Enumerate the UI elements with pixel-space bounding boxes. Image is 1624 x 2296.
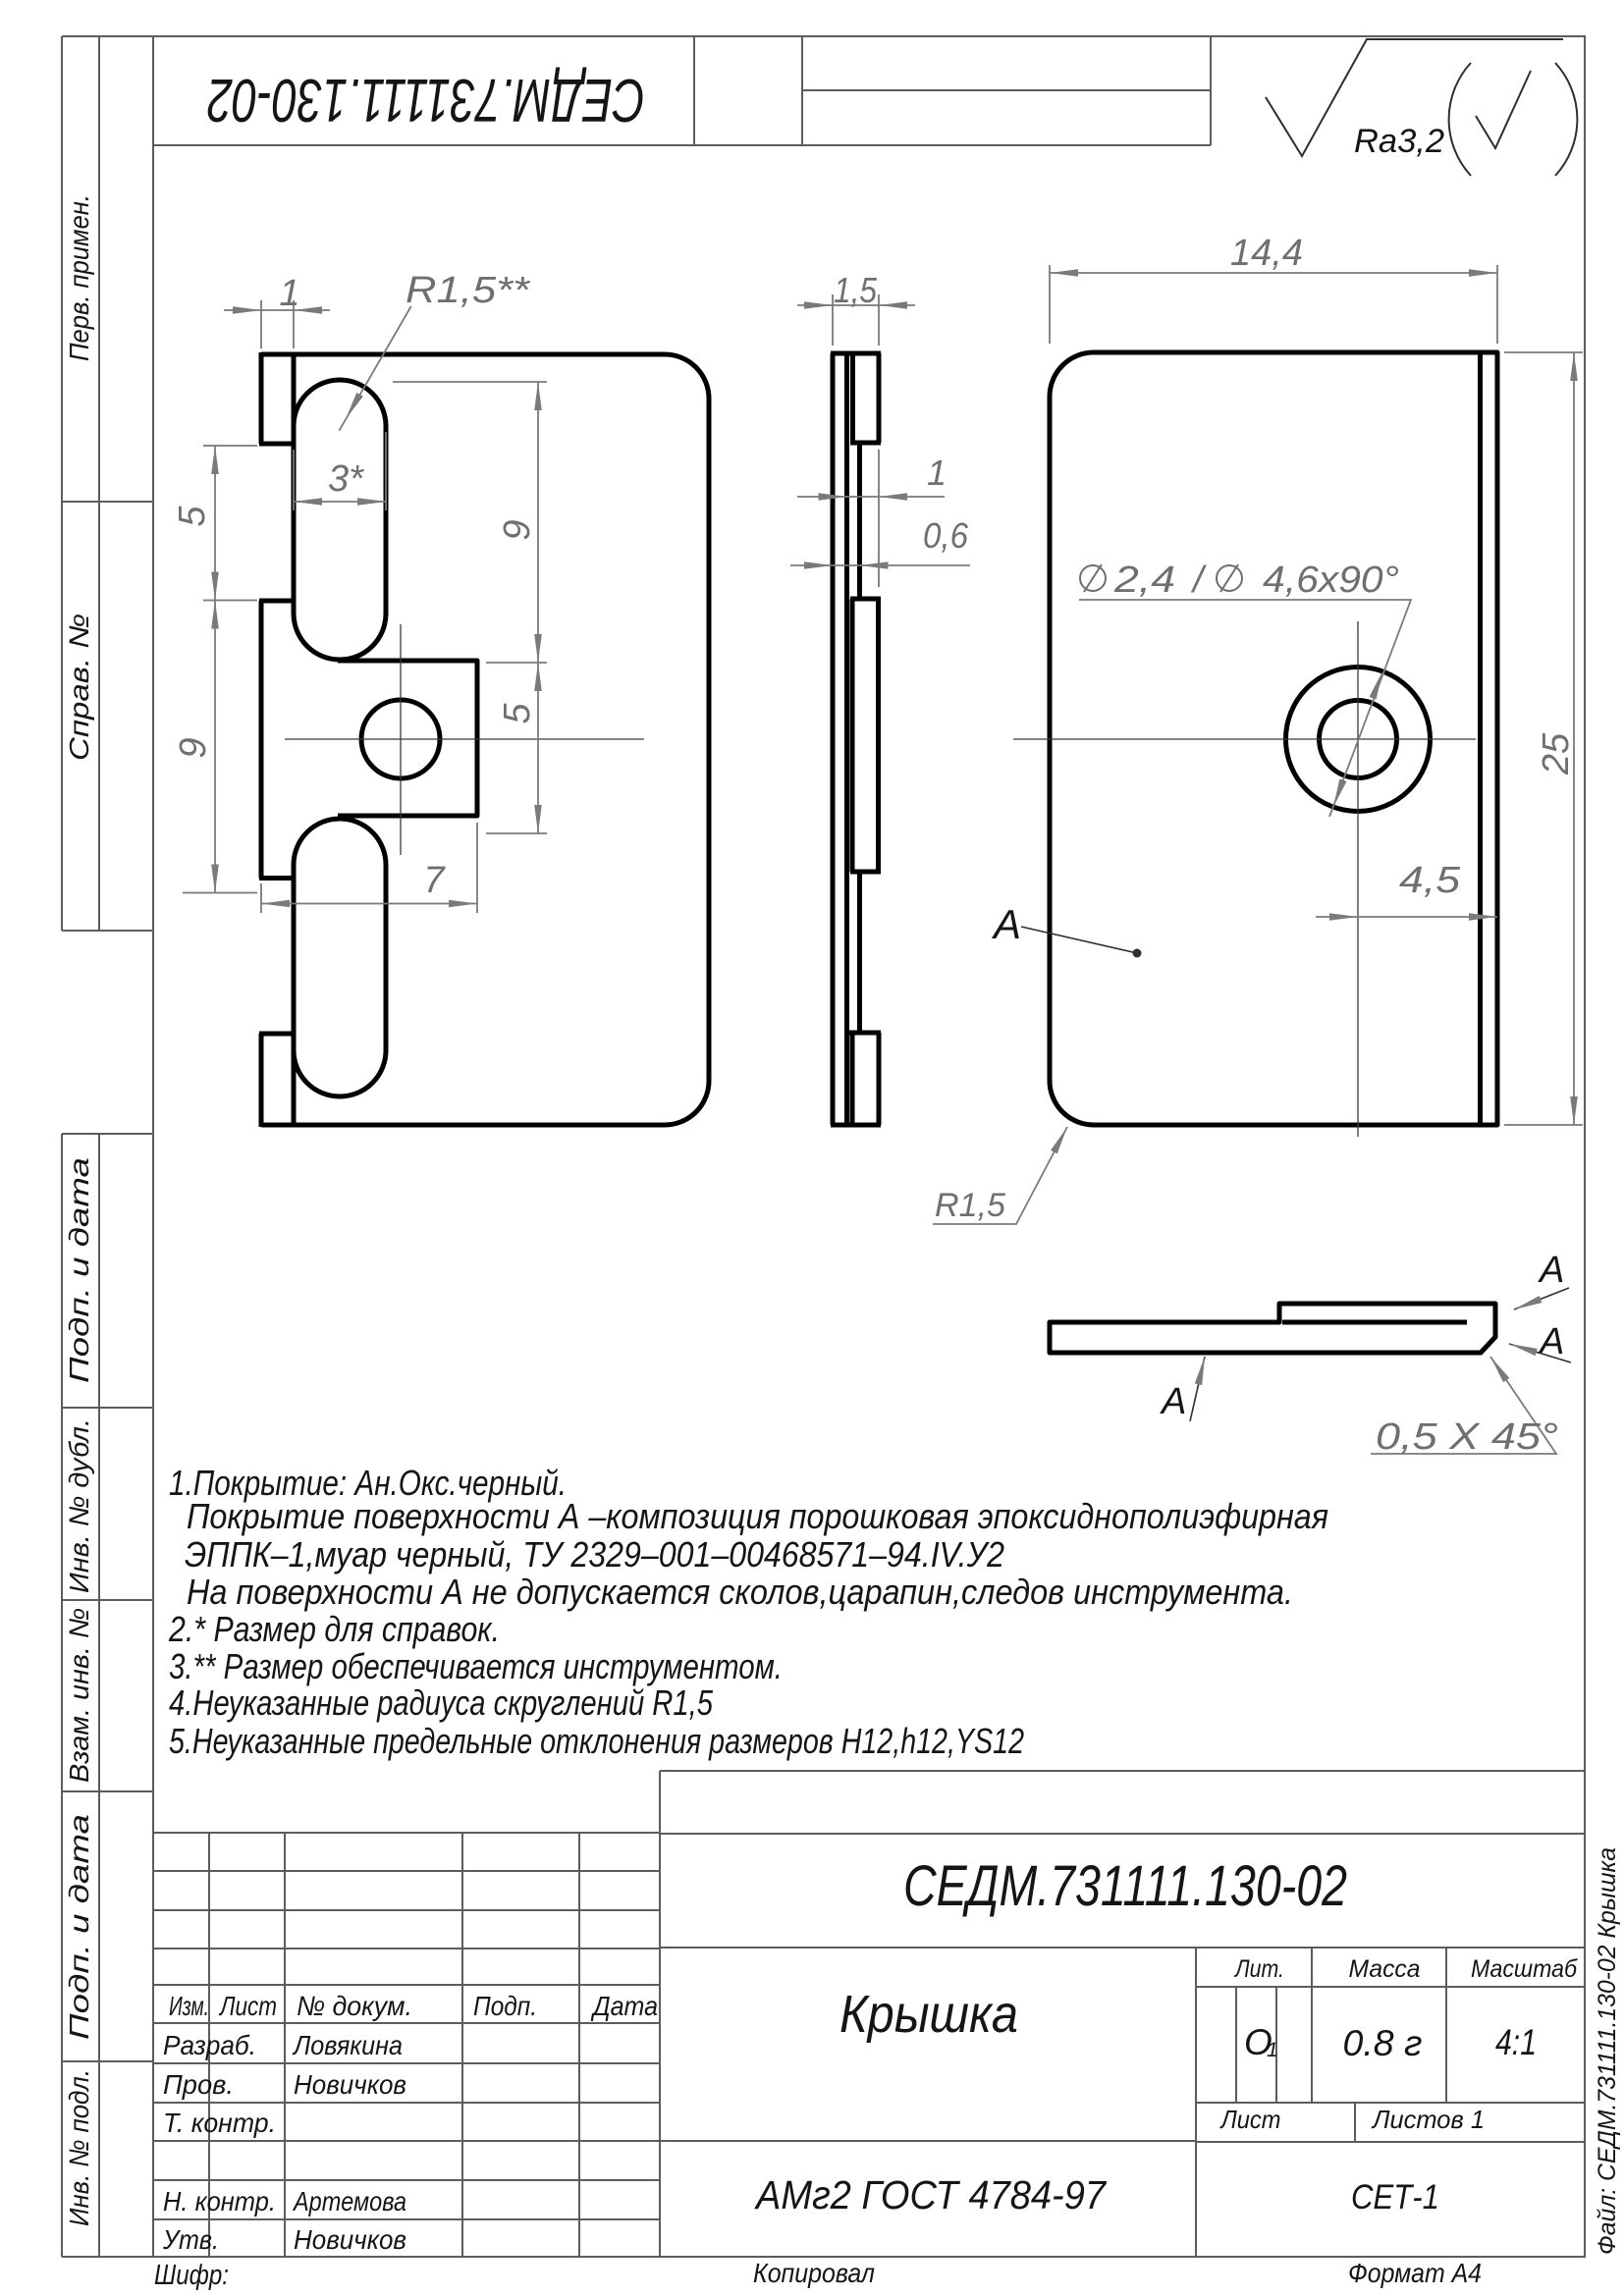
svg-text:Файл: СЕДМ.731111.130-02 Крышк: Файл: СЕДМ.731111.130-02 Крышка — [1594, 1847, 1621, 2255]
svg-text:Новичков: Новичков — [294, 2224, 406, 2255]
svg-text:Взам. инв. №: Взам. инв. № — [64, 1608, 94, 1783]
svg-text:1: 1 — [279, 273, 299, 314]
svg-text:Утв.: Утв. — [162, 2224, 219, 2255]
svg-text:3*: 3* — [328, 458, 364, 500]
svg-text:1,5: 1,5 — [834, 270, 878, 310]
svg-text:25: 25 — [1536, 732, 1577, 775]
svg-text:Лист: Лист — [1219, 2105, 1281, 2134]
svg-text:Разраб.: Разраб. — [163, 2030, 256, 2060]
svg-text:Лит.: Лит. — [1233, 1955, 1284, 1983]
svg-text:Листов 1: Листов 1 — [1371, 2105, 1485, 2134]
svg-text:Масса: Масса — [1349, 1955, 1421, 1983]
svg-text:АМг2 ГОСТ 4784-97: АМг2 ГОСТ 4784-97 — [753, 2172, 1108, 2217]
svg-text:СЕДМ.731111.130-02: СЕДМ.731111.130-02 — [903, 1854, 1347, 1918]
svg-text:9: 9 — [497, 519, 538, 540]
svg-text:А: А — [991, 901, 1021, 947]
svg-text:R1,5**: R1,5** — [406, 270, 530, 311]
svg-text:Т. контр.: Т. контр. — [163, 2108, 276, 2138]
svg-text:Н. контр.: Н. контр. — [163, 2186, 276, 2216]
svg-text:Лист: Лист — [218, 1991, 277, 2021]
svg-text:Подп. и дата: Подп. и дата — [64, 1157, 94, 1383]
svg-text:Масштаб: Масштаб — [1471, 1955, 1578, 1983]
svg-text:0,6: 0,6 — [923, 515, 969, 556]
svg-text:Инв. № подл.: Инв. № подл. — [64, 2069, 94, 2226]
svg-text:А: А — [1538, 1250, 1564, 1291]
svg-text:Подп. и дата: Подп. и дата — [64, 1814, 94, 2040]
svg-text:Ra3,2: Ra3,2 — [1354, 123, 1444, 160]
svg-text:1: 1 — [927, 453, 947, 493]
svg-text:Инв. № дубл.: Инв. № дубл. — [64, 1418, 94, 1593]
svg-text:Крышка: Крышка — [839, 1985, 1018, 2044]
svg-text:А: А — [1160, 1381, 1186, 1422]
svg-text:Копировал: Копировал — [753, 2258, 875, 2288]
svg-text:0,5 X 45°: 0,5 X 45° — [1376, 1416, 1558, 1458]
svg-text:Дата: Дата — [590, 1991, 658, 2021]
svg-text:Покрытие поверхности А –композ: Покрытие поверхности А –композиция порош… — [187, 1496, 1328, 1536]
svg-text:Новичков: Новичков — [294, 2069, 406, 2100]
svg-text:9: 9 — [173, 737, 214, 758]
svg-text:7: 7 — [423, 860, 446, 901]
svg-text:Шифр:: Шифр: — [154, 2260, 229, 2291]
svg-text:0.8 г: 0.8 г — [1343, 2023, 1423, 2063]
svg-text:Формат А4: Формат А4 — [1348, 2258, 1482, 2288]
svg-text:На поверхности А не допускаетс: На поверхности А не допускается сколов,ц… — [187, 1572, 1293, 1612]
svg-text:Справ. №: Справ. № — [64, 614, 94, 761]
svg-text:Перв. примен.: Перв. примен. — [64, 194, 94, 361]
svg-text:4.Неуказанные радиуса скруглен: 4.Неуказанные радиуса скруглений R1,5 — [169, 1682, 714, 1723]
svg-text:R1,5: R1,5 — [935, 1187, 1005, 1224]
svg-text:1: 1 — [1267, 2039, 1278, 2061]
svg-text:ЭППК–1,муар черный, ТУ 2329–0: ЭППК–1,муар черный, ТУ 2329–001–00468571… — [185, 1534, 1004, 1575]
svg-text:5.Неуказанные предельные откло: 5.Неуказанные предельные отклонения разм… — [169, 1721, 1024, 1761]
svg-text:3.** Размер обеспечивается инс: 3.** Размер обеспечивается инструментом. — [169, 1646, 783, 1686]
svg-text:4,5: 4,5 — [1399, 860, 1461, 901]
svg-text:СЕТ-1: СЕТ-1 — [1351, 2178, 1439, 2216]
svg-text:Артемова: Артемова — [292, 2186, 406, 2216]
svg-text:5: 5 — [172, 506, 213, 527]
svg-text:Изм.: Изм. — [169, 1991, 209, 2021]
svg-text:Пров.: Пров. — [163, 2069, 234, 2100]
svg-text:14,4: 14,4 — [1230, 233, 1303, 274]
svg-text:СЕДМ.731111.130-02: СЕДМ.731111.130-02 — [207, 66, 645, 133]
svg-text:5: 5 — [497, 703, 538, 724]
svg-text:Подп.: Подп. — [473, 1991, 537, 2021]
svg-text:№ докум.: № докум. — [297, 1991, 412, 2021]
svg-text:4:1: 4:1 — [1495, 2022, 1537, 2062]
svg-text:2.* Размер для справок.: 2.* Размер для справок. — [168, 1609, 500, 1649]
svg-text:2,4: 2,4 — [1113, 560, 1175, 601]
svg-text:Ловякина: Ловякина — [292, 2030, 403, 2060]
svg-text:4,6x90°: 4,6x90° — [1263, 560, 1399, 601]
